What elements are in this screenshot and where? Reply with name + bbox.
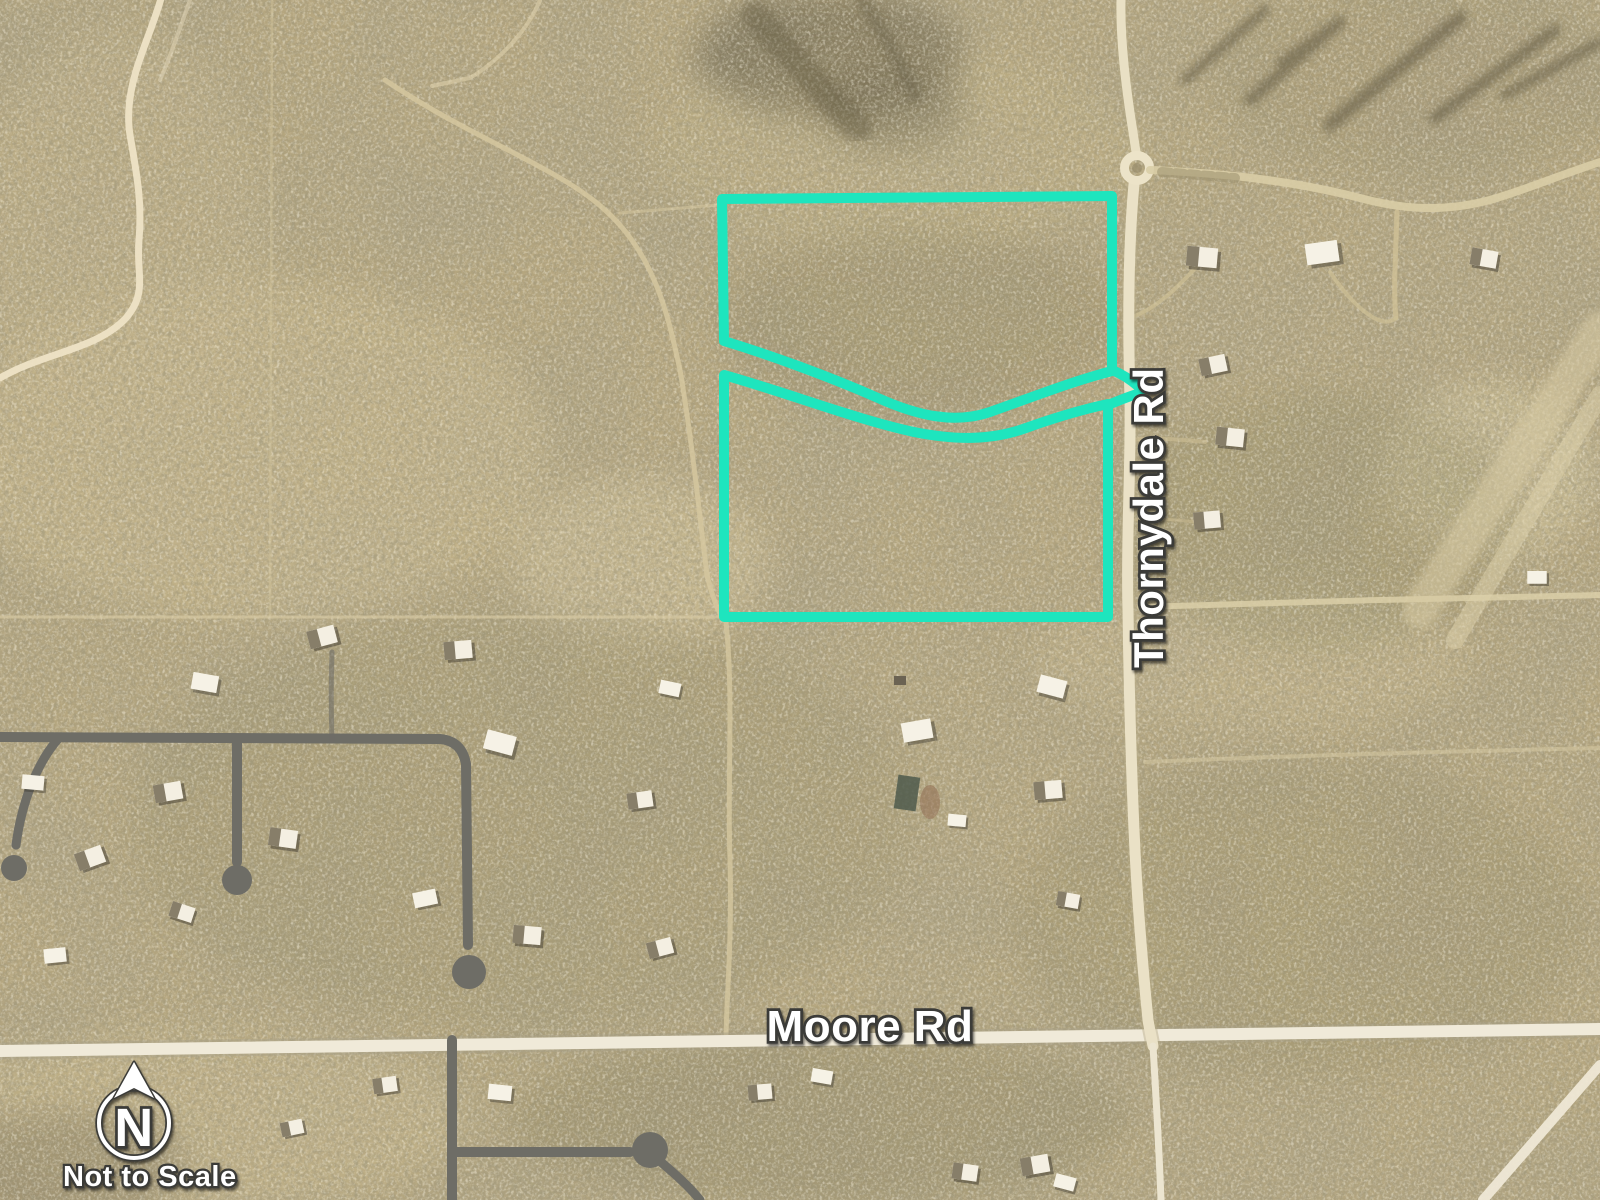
aerial-site-map: Thornydale Rd Moore Rd N Not to Scale xyxy=(0,0,1600,1200)
thornydale-road-label: Thornydale Rd xyxy=(1125,367,1172,668)
dirt-arena xyxy=(920,785,940,819)
compass-north-letter: N xyxy=(114,1098,154,1158)
moore-road-label: Moore Rd xyxy=(767,1002,974,1051)
cattle-guard xyxy=(1162,172,1235,178)
scale-note: Not to Scale xyxy=(63,1161,237,1193)
sport-court xyxy=(894,775,921,812)
roundabout xyxy=(1125,156,1150,181)
map-canvas: Thornydale Rd Moore Rd N Not to Scale xyxy=(0,0,1600,1200)
